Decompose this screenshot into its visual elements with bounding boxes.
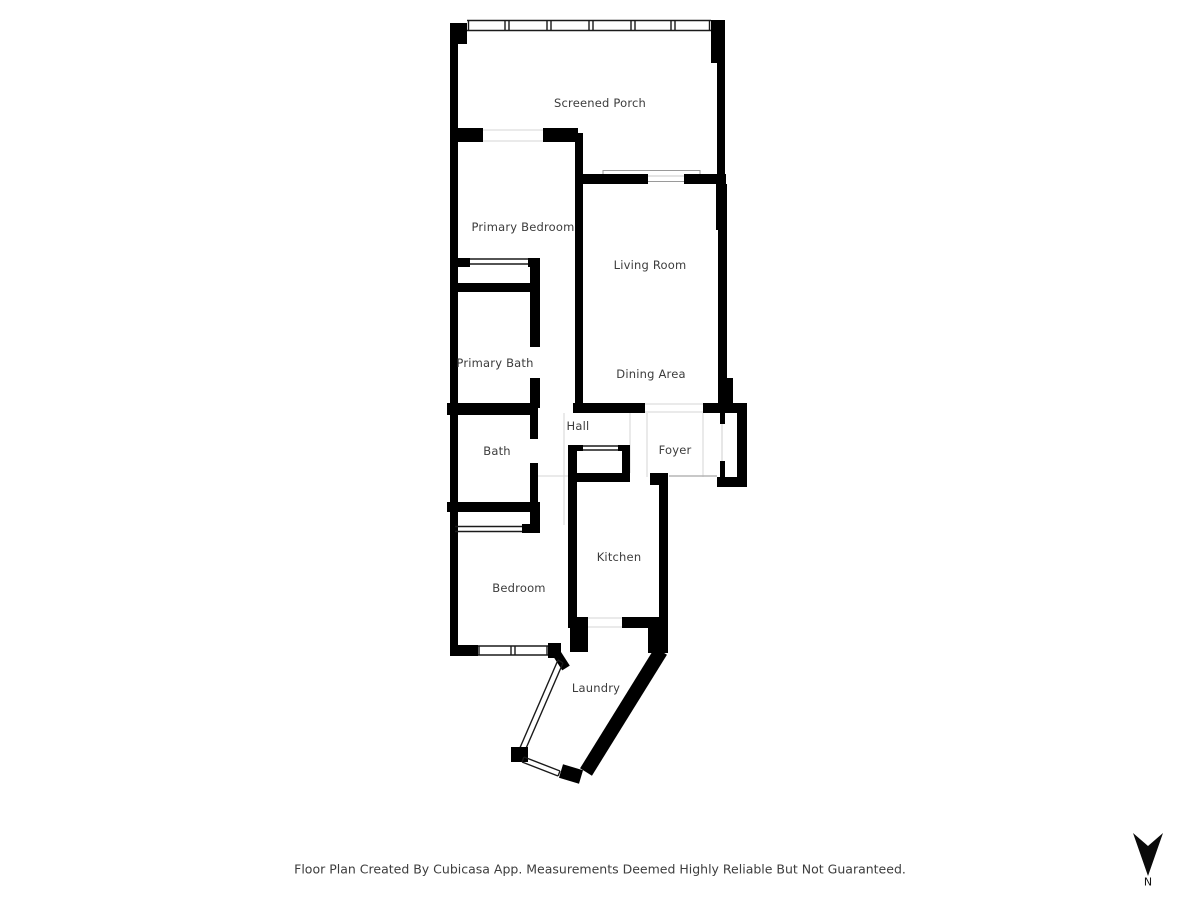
wall-segment: [578, 174, 648, 184]
room-label-primary-bedroom: Primary Bedroom: [471, 220, 574, 234]
wall-segment: [720, 413, 725, 424]
floor-plan-canvas: Screened Porch Primary Bedroom Living Ro…: [0, 0, 1200, 900]
room-label-living-room: Living Room: [614, 258, 687, 272]
wall-segment: [570, 445, 583, 451]
porch-screen-window: [467, 21, 711, 31]
room-label-dining-area: Dining Area: [616, 367, 685, 381]
room-label-hall: Hall: [567, 419, 590, 433]
room-label-kitchen: Kitchen: [597, 550, 642, 564]
wall-segment: [568, 445, 577, 625]
wall-segment: [568, 473, 630, 482]
wall-segment: [717, 477, 747, 487]
room-label-foyer: Foyer: [659, 443, 692, 457]
hall-closet-door: [583, 446, 618, 450]
wall-segment: [453, 128, 483, 142]
wall-segment: [650, 473, 668, 485]
wall-segment: [586, 651, 661, 772]
room-label-bedroom: Bedroom: [492, 581, 545, 595]
bedroom-closet-slider: [455, 527, 522, 532]
wall-segment: [684, 174, 726, 184]
wall-segment: [453, 283, 540, 292]
wall-segment: [716, 184, 727, 230]
wall-segment: [659, 485, 668, 617]
wall-segment: [450, 645, 478, 656]
wall-segment: [720, 461, 725, 477]
wall-segment: [447, 403, 538, 415]
walls-layer: [447, 20, 747, 777]
wall-segment: [455, 258, 470, 267]
room-label-screened-porch: Screened Porch: [554, 96, 646, 110]
room-label-bath: Bath: [483, 444, 511, 458]
wall-segment: [530, 415, 538, 439]
wall-segment: [561, 771, 581, 777]
compass-north-label: N: [1144, 876, 1152, 889]
wall-segment: [530, 292, 540, 347]
wall-segment: [575, 133, 583, 407]
wall-segment: [573, 403, 645, 413]
room-label-primary-bath: Primary Bath: [456, 356, 533, 370]
wall-segment: [450, 23, 458, 655]
laundry-window-upper: [519, 660, 563, 753]
wall-segment: [717, 63, 725, 175]
primary-closet-slider: [470, 259, 528, 264]
wall-segment: [718, 230, 727, 380]
wall-segment: [522, 524, 540, 533]
wall-segment: [711, 20, 725, 63]
laundry-corner-block: [511, 747, 528, 762]
wall-segment: [737, 405, 747, 487]
north-arrow-icon: [1133, 833, 1163, 876]
wall-segment: [570, 626, 588, 652]
wall-segment: [447, 502, 530, 512]
bedroom-window: [478, 646, 548, 655]
footer-disclaimer: Floor Plan Created By Cubicasa App. Meas…: [294, 862, 906, 877]
wall-segment: [648, 617, 668, 653]
wall-segment: [543, 128, 578, 142]
floor-plan-drawing: [0, 0, 1200, 900]
room-label-laundry: Laundry: [572, 681, 620, 695]
